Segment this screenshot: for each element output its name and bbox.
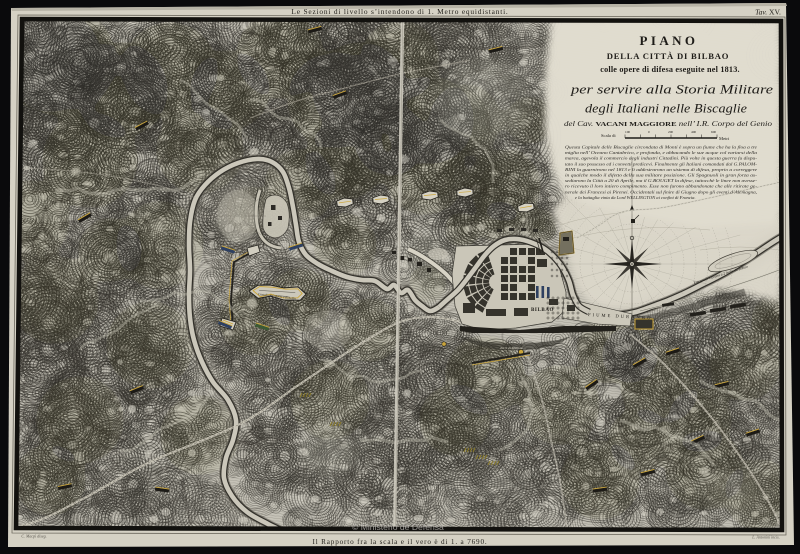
- svg-text:100: 100: [625, 130, 630, 134]
- svg-text:Il Rapporto fra la scala e il: Il Rapporto fra la scala e il vero è di …: [313, 537, 488, 546]
- svg-text:L. Antonini incis.: L. Antonini incis.: [751, 535, 779, 540]
- svg-text:BILBAO: BILBAO: [531, 308, 554, 313]
- svg-text:400: 400: [691, 130, 696, 134]
- svg-text:Le Sezioni di livello s’intend: Le Sezioni di livello s’intendono di 1. …: [291, 7, 508, 16]
- svg-text:tato il suo possesso ed i conv: tato il suo possesso ed i convetti predi…: [565, 161, 758, 166]
- svg-text:per servire alla Storia Milita: per servire alla Storia Militare: [570, 82, 774, 97]
- svg-text:del Cav. VACANI MAGGIORE nell’: del Cav. VACANI MAGGIORE nell’ I.R. Corp…: [564, 120, 773, 128]
- svg-text:degli Italiani nelle Biscaglie: degli Italiani nelle Biscaglie: [585, 102, 748, 116]
- svg-text:600: 600: [711, 130, 716, 134]
- svg-text:C. Macpì diseg.: C. Macpì diseg.: [21, 534, 46, 539]
- svg-text:Conv.di S.Agostino: Conv.di S.Agostino: [656, 319, 681, 323]
- svg-text:in qualche modo il difetto del: in qualche modo il difetto della sua mil…: [565, 173, 758, 178]
- svg-text:ro ricevuto il loro intiero co: ro ricevuto il loro intiero compimento. …: [565, 184, 758, 189]
- svg-text:DELLA CITTÀ DI BILBAO: DELLA CITTÀ DI BILBAO: [607, 51, 730, 61]
- svg-text:Metri: Metri: [719, 136, 730, 141]
- svg-text:PIANO: PIANO: [640, 33, 699, 48]
- svg-text:Scala di: Scala di: [601, 133, 616, 138]
- svg-text:e la battaglia vinta da Lord W: e la battaglia vinta da Lord WELLINGTON …: [575, 195, 696, 200]
- svg-text:Torre di Mallona: Torre di Mallona: [500, 346, 523, 350]
- svg-text:200: 200: [668, 130, 673, 134]
- svg-text:Questa Capitale delle Biscagli: Questa Capitale delle Biscaglie circonda…: [565, 145, 757, 150]
- svg-text:Tav. XV.: Tav. XV.: [755, 8, 781, 17]
- svg-text:colle opere di difesa eseguite: colle opere di difesa eseguite nel 1813.: [600, 65, 740, 74]
- svg-text:© Ministerio de Defensa: © Ministerio de Defensa: [352, 522, 444, 532]
- svg-text:0: 0: [648, 130, 650, 134]
